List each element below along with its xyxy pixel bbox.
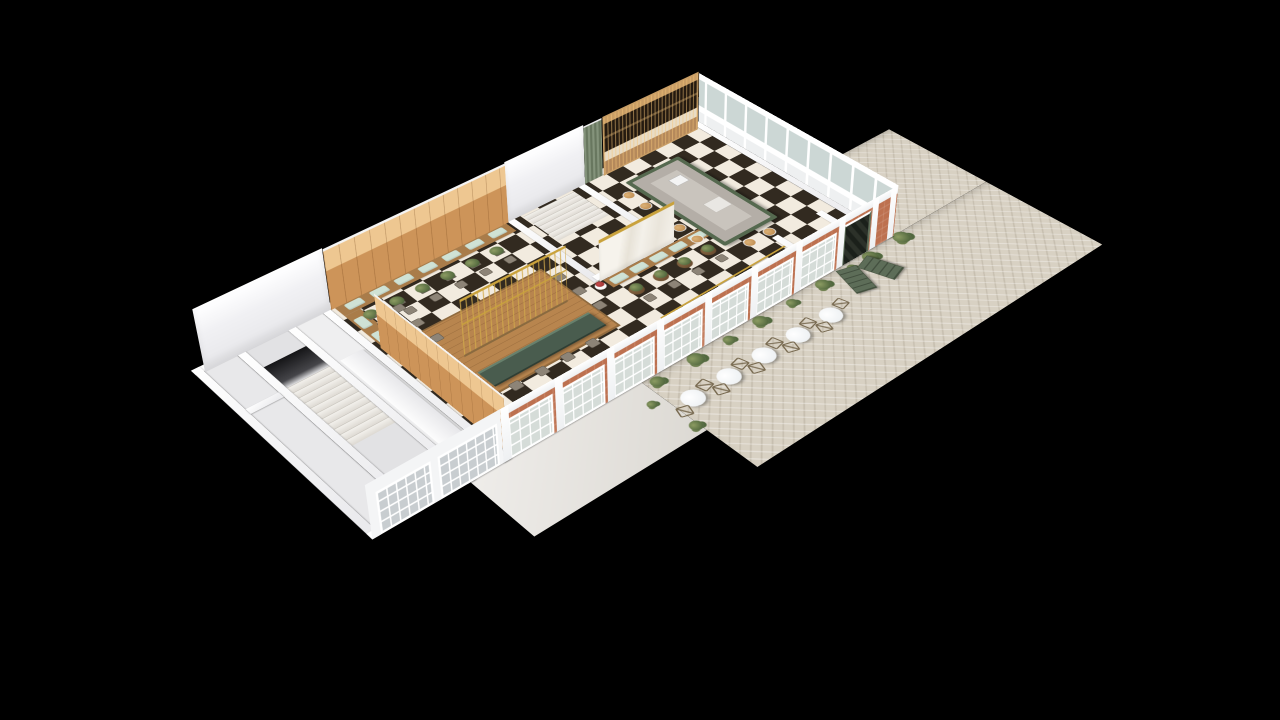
facade-pilaster [704, 290, 712, 346]
bar-curtain [583, 118, 603, 184]
render-canvas [0, 0, 1280, 720]
facade-pilaster [554, 374, 564, 432]
facade-pilaster [607, 345, 616, 402]
facade-pilaster [657, 317, 664, 374]
floorplan-plane [133, 54, 1136, 679]
